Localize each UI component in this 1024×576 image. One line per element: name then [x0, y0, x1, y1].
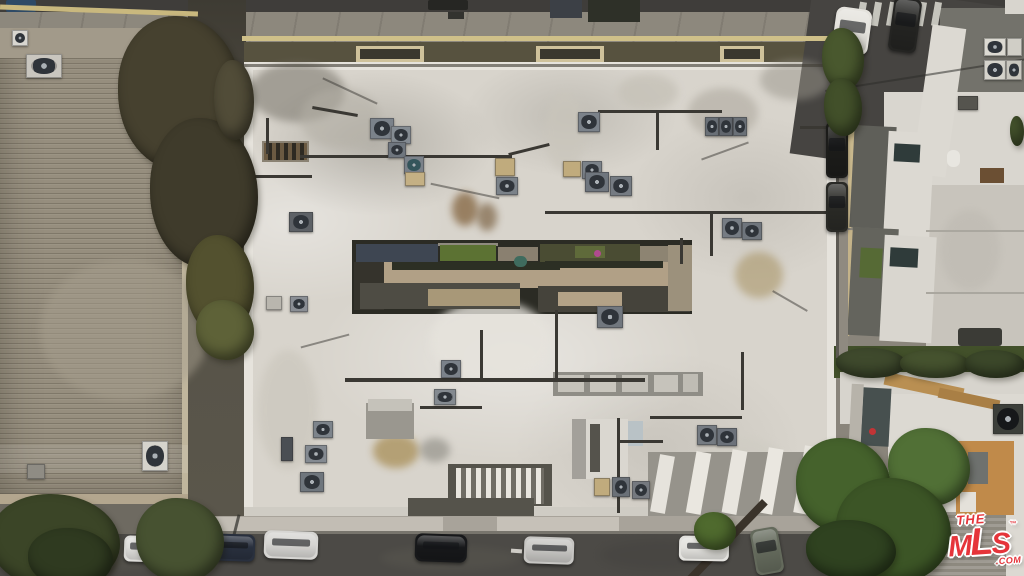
fan-icon — [499, 180, 514, 192]
lawn-patch — [859, 247, 883, 278]
hvac — [578, 112, 600, 132]
pipe — [617, 418, 620, 513]
pipe — [555, 310, 558, 380]
spa — [514, 256, 527, 267]
pipe — [420, 406, 482, 409]
deck-panel — [968, 452, 988, 484]
hvac — [305, 445, 327, 463]
hvac — [984, 38, 1006, 56]
hvac — [594, 478, 610, 496]
tree — [824, 78, 862, 136]
pink-plant — [594, 250, 601, 257]
fan-icon — [700, 428, 714, 442]
hvac — [697, 425, 717, 445]
pipe — [680, 238, 683, 264]
fan-icon — [316, 424, 330, 435]
hvac — [142, 441, 168, 471]
stair-access-side — [572, 419, 586, 479]
courtyard-deck — [558, 292, 622, 306]
tree — [1010, 116, 1024, 146]
planter-row — [545, 261, 663, 268]
hvac — [585, 172, 609, 192]
hvac — [984, 60, 1006, 80]
tree — [965, 350, 1024, 378]
window-glass — [360, 49, 420, 59]
paint-dash — [511, 549, 522, 554]
hvac — [717, 428, 737, 446]
hvac — [495, 158, 515, 176]
pipe — [650, 416, 742, 419]
stain — [618, 74, 678, 110]
hvac — [496, 177, 518, 195]
fan-icon — [725, 221, 739, 235]
stair-access-slot — [590, 424, 600, 472]
fan-icon — [407, 159, 421, 171]
tree — [900, 350, 970, 378]
deck-door — [960, 492, 976, 512]
fan-icon — [15, 33, 26, 44]
debris-top — [448, 12, 464, 19]
driveway-object — [958, 328, 1002, 346]
hvac — [12, 30, 28, 46]
platform-pad — [683, 374, 698, 392]
fan-icon — [987, 41, 1002, 53]
pipe — [656, 112, 659, 150]
fan-icon — [374, 121, 391, 135]
alley-scaffold — [588, 0, 640, 22]
roof-box-top — [368, 399, 412, 411]
wall-shadow — [244, 64, 836, 67]
slate-window — [861, 387, 892, 446]
fan-icon — [31, 58, 57, 75]
hvac — [26, 54, 62, 78]
roof-ladder — [262, 141, 309, 162]
hvac — [441, 360, 461, 378]
driveway-joint — [926, 292, 1024, 294]
hvac — [719, 117, 733, 136]
hvac — [266, 296, 282, 310]
corner-roof — [1005, 0, 1024, 14]
pallet — [980, 168, 1004, 183]
car-top-edge — [428, 0, 468, 10]
pipe — [617, 440, 663, 443]
yellow-curb-main — [242, 36, 828, 41]
tree — [214, 60, 254, 140]
stain — [420, 438, 450, 462]
hvac — [1007, 38, 1022, 56]
hvac — [632, 481, 650, 499]
platform-pad — [654, 375, 678, 392]
hvac — [597, 306, 623, 328]
courtyard-deck — [428, 289, 520, 306]
bottom-recess — [408, 498, 534, 516]
fan-icon — [601, 309, 619, 324]
pipe — [741, 352, 744, 410]
hvac — [290, 296, 308, 312]
red-object — [869, 428, 876, 435]
stain — [40, 260, 210, 400]
hvac — [705, 117, 719, 136]
silver-sedan — [524, 536, 575, 565]
fan-icon — [394, 129, 408, 141]
parked-car — [826, 182, 848, 232]
fan-icon — [613, 179, 628, 193]
fan-icon — [721, 120, 730, 133]
hvac — [563, 161, 581, 177]
hvac — [742, 222, 762, 240]
fan-icon — [707, 120, 716, 133]
hvac — [958, 96, 978, 110]
pipe — [345, 378, 645, 382]
fan-icon — [391, 145, 403, 156]
planter-row — [392, 262, 560, 270]
tree — [196, 300, 254, 360]
fan-icon — [615, 480, 627, 494]
fan-icon — [589, 175, 606, 189]
fan-icon — [293, 299, 305, 310]
fan-icon — [745, 225, 759, 237]
hvac — [434, 389, 456, 405]
window-glass — [540, 49, 600, 59]
fan-icon — [581, 115, 596, 129]
tree — [836, 348, 906, 378]
mls-tm: ™ — [1009, 521, 1016, 528]
fan-icon — [146, 445, 164, 466]
stain — [300, 88, 380, 148]
fan-icon — [997, 408, 1018, 429]
hvac — [313, 421, 333, 438]
hvac — [281, 437, 293, 461]
black-suv — [415, 533, 468, 563]
courtyard-lawn — [440, 245, 496, 261]
fan-icon — [735, 120, 744, 133]
fan-icon — [304, 475, 321, 489]
pipe — [598, 110, 722, 113]
fan-icon — [720, 431, 734, 443]
stain — [373, 434, 419, 468]
pipe — [710, 214, 713, 256]
stain — [477, 203, 497, 231]
window-glass — [724, 49, 760, 59]
hvac — [300, 472, 324, 492]
pipe — [480, 330, 483, 380]
pipe — [545, 211, 835, 214]
hvac — [27, 464, 45, 479]
hvac — [1006, 60, 1022, 80]
fan-icon — [987, 63, 1002, 77]
mls-watermark: THE MLS™ .COM — [944, 509, 1024, 576]
hvac — [612, 477, 630, 497]
townhouse-skylight — [890, 247, 919, 267]
fan-icon — [444, 363, 458, 375]
white-object — [947, 150, 960, 167]
stain — [940, 210, 1000, 290]
aerial-photo: THE MLS™ .COM — [0, 0, 1024, 576]
fan-icon — [308, 448, 323, 460]
alley-structure — [550, 0, 582, 18]
hvac — [993, 404, 1023, 434]
silver-car — [264, 530, 319, 560]
hvac — [289, 212, 313, 232]
fan-icon — [1009, 63, 1020, 77]
stain — [545, 92, 585, 172]
pipe — [266, 118, 269, 154]
hvac — [722, 218, 742, 238]
driveway-joint — [926, 230, 1024, 232]
townhouse-skylight — [894, 143, 921, 162]
fan-icon — [635, 484, 647, 496]
stain — [452, 192, 478, 226]
fan-icon — [293, 215, 310, 229]
hvac — [610, 176, 632, 196]
fan-icon — [437, 392, 452, 403]
hvac — [405, 172, 425, 186]
hvac — [733, 117, 747, 136]
courtyard-patch — [640, 246, 670, 262]
tree — [694, 512, 736, 550]
